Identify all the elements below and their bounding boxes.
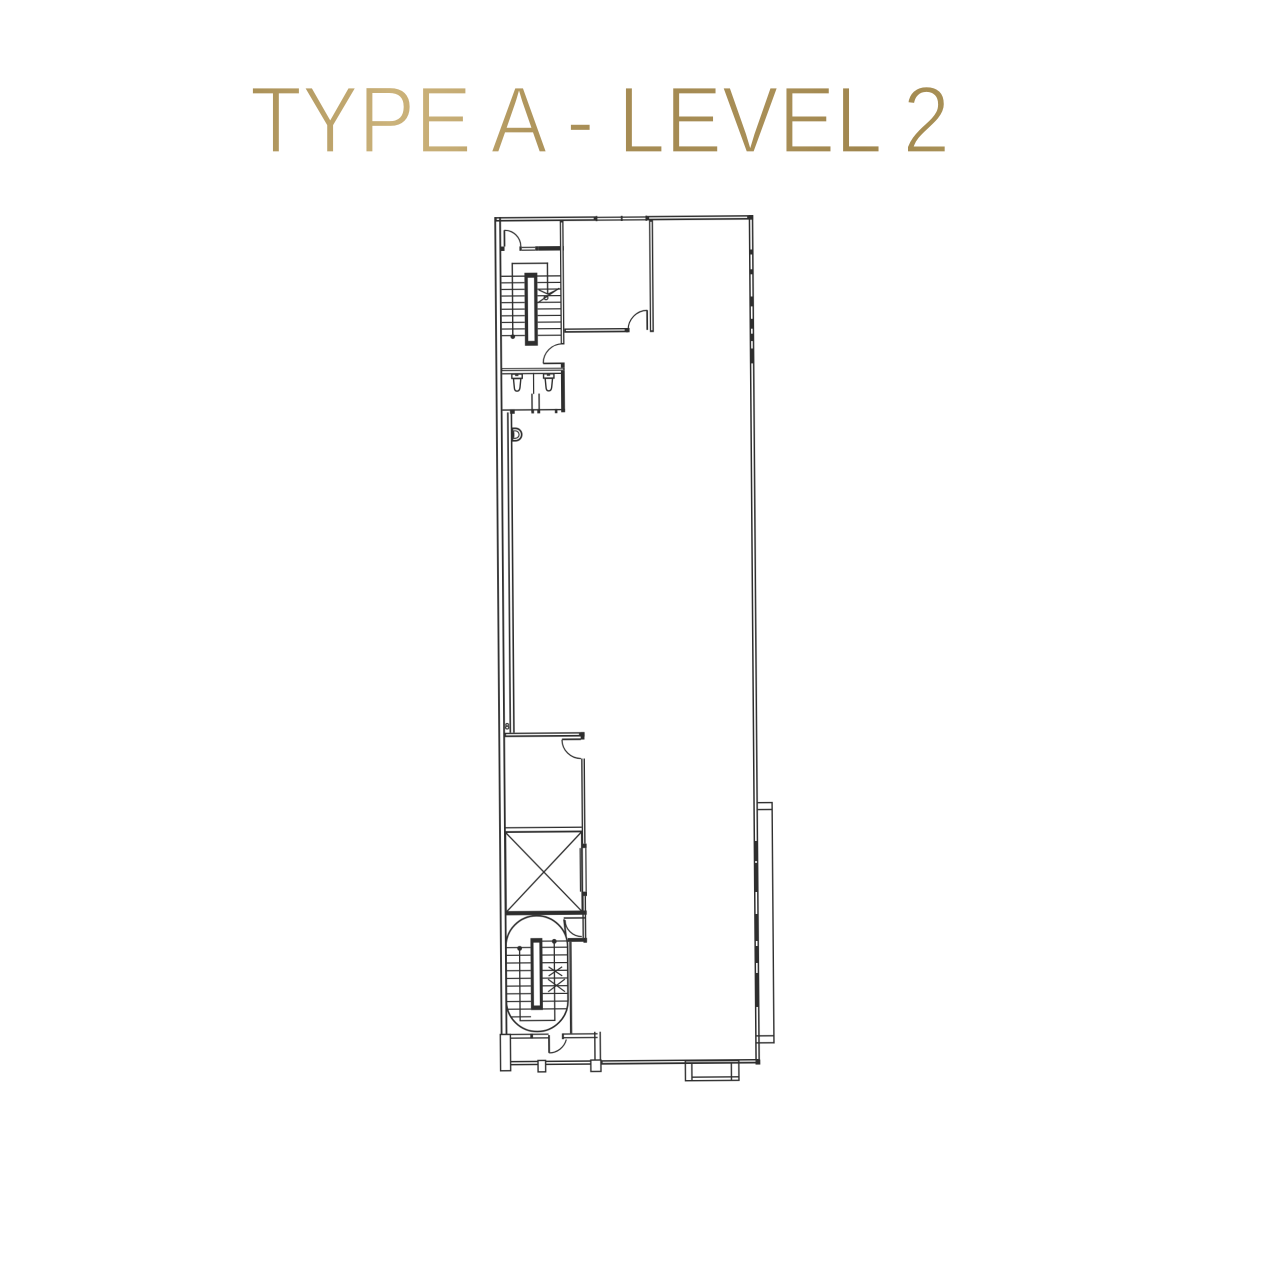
svg-text:TYPE A - LEVEL 2: TYPE A - LEVEL 2 — [250, 67, 950, 173]
